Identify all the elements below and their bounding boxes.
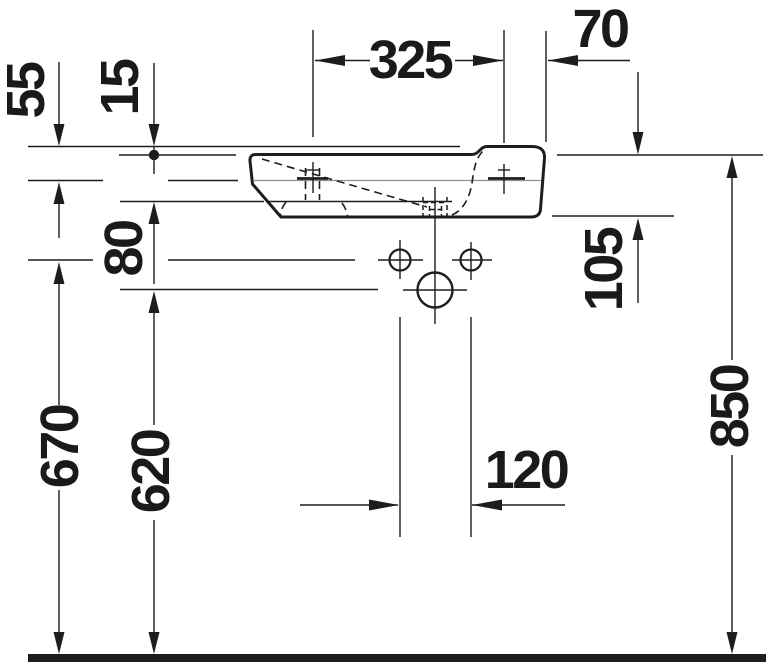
floor-line xyxy=(28,654,766,662)
dim-label-80: 80 xyxy=(97,221,151,276)
dim-label-850: 850 xyxy=(703,366,757,449)
dim-label-55: 55 xyxy=(0,63,53,118)
dim-label-15: 15 xyxy=(93,60,147,115)
dim-label-70: 70 xyxy=(572,2,627,56)
dimension-arrowheads xyxy=(54,55,738,654)
dim-label-670: 670 xyxy=(33,406,87,489)
technical-drawing-page: 55 15 325 70 80 105 670 620 120 850 xyxy=(0,0,767,663)
dim-label-325: 325 xyxy=(369,33,452,87)
reference-lines xyxy=(28,30,763,633)
reference-dot xyxy=(149,150,159,160)
washbasin-outline xyxy=(250,147,545,218)
dim-label-120: 120 xyxy=(485,443,568,497)
dim-label-620: 620 xyxy=(124,431,178,514)
dim-label-105: 105 xyxy=(577,229,631,312)
